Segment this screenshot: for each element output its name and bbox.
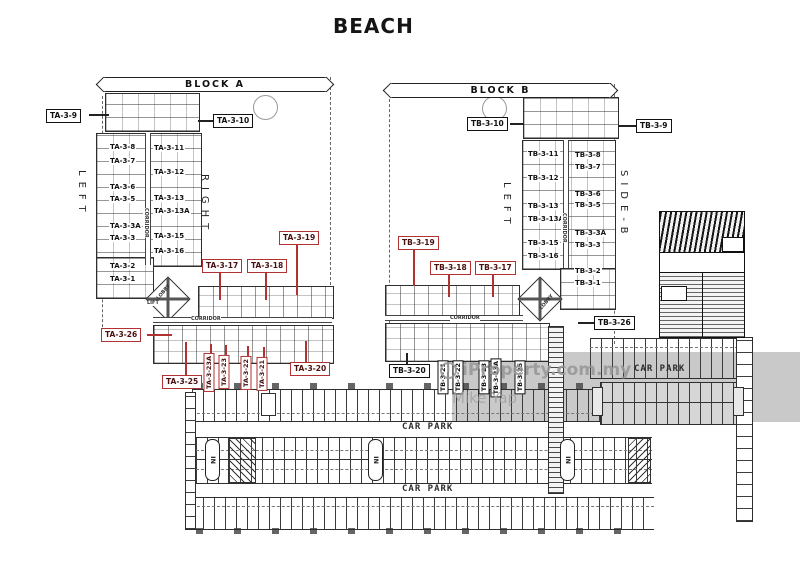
carpark-label-3: CAR PARK [634,364,685,374]
label-leader-line [89,114,109,116]
unit-label-ta-3-7: TA-3-7 [109,158,136,165]
unit-label-tb-3-11: TB-3-11 [527,151,560,158]
unit-label-ta-3-3a: TA-3-3A [109,223,142,230]
block-a-corridor-text: CORRIDOR [143,208,148,238]
label-leader-line [219,273,221,300]
unit-label-tb-3-5: TB-3-5 [574,202,602,209]
unit-label-ta-3-8: TA-3-8 [109,144,136,151]
label-leader-line [618,125,637,127]
unit-label-tb-3-8: TB-3-8 [574,152,602,159]
carpark-ramp-chevron [228,438,256,483]
unit-label-ta-3-13a: TA-3-13A [153,208,191,215]
unit-label-tb-3-19: TB-3-19 [398,236,439,250]
block-b-side-left-label: LEFT [501,182,512,252]
unit-label-ta-3-6: TA-3-6 [109,184,136,191]
unit-label-tb-3-17: TB-3-17 [475,261,516,275]
block-a-bottom-corridor-text: CORRIDOR [191,317,221,322]
unit-label-tb-3-15: TB-3-15 [527,240,560,247]
unit-label-tb-3-6: TB-3-6 [574,191,602,198]
watermark: i iProperty.com.my [440,360,631,380]
unit-label-ta-3-21: TA-3-21 [257,357,268,391]
right-edge-columns [736,337,753,522]
block-a-bottom-corridor [153,317,332,323]
boundary-dash-a-right [330,77,331,305]
tree-circle-a [253,95,278,120]
block-b-corridor [563,140,569,268]
label-leader-line [492,275,494,297]
label-leader-line [185,342,187,377]
unit-label-ta-3-26: TA-3-26 [101,328,141,342]
unit-label-ta-3-23a: TA-3-23A [204,353,215,392]
block-b-lift-core [517,276,562,321]
carpark-left-edge [185,392,196,530]
block-b-bottom-wing-upper [385,285,520,317]
block-a-corridor [145,133,151,265]
unit-label-tb-3-13a: TB-3-13A [527,216,565,223]
unit-label-tb-3-13: TB-3-13 [527,203,560,210]
floor-plan-page: BEACH BLOCK A BLOCK B LEFT RIGHT LEFT SI… [0,0,800,586]
unit-label-ta-3-23: TA-3-23 [219,355,230,389]
page-title: BEACH [333,14,414,38]
label-leader-line [413,250,415,286]
unit-label-ta-3-10: TA-3-10 [213,114,253,128]
unit-label-tb-3-16: TB-3-16 [527,253,560,260]
unit-label-ta-3-9: TA-3-9 [46,109,81,123]
unit-label-ta-3-13: TA-3-13 [153,195,185,202]
unit-label-ta-3-11: TA-3-11 [153,145,185,152]
unit-label-ta-3-17: TA-3-17 [202,259,242,273]
unit-label-tb-3-3: TB-3-3 [574,242,602,249]
block-a-top-units [105,93,200,132]
block-a-banner: BLOCK A [103,77,327,92]
carpark-ramp-right [628,438,651,483]
unit-label-ta-3-1: TA-3-1 [109,276,136,283]
parking-row-middle [196,437,652,484]
parking-island [600,382,737,425]
watermark-brand: iProperty.com.my [462,360,631,380]
watermark-user: Mike Yap [452,389,517,407]
carpark-in-marker-1: IN [205,439,220,481]
unit-label-ta-3-12: TA-3-12 [153,169,185,176]
label-leader-line [510,123,524,125]
tower-divider [702,272,703,337]
unit-label-tb-3-26: TB-3-26 [594,316,635,330]
block-b-bottom-wing-lower [385,323,550,362]
label-leader-line [305,341,307,364]
block-b-corridor-text: CORRIDOR [561,213,566,243]
block-a-lift-shaft [261,393,276,416]
label-leader-line [147,334,172,336]
unit-label-ta-3-20: TA-3-20 [290,362,330,376]
unit-label-tb-3-9: TB-3-9 [636,119,672,133]
unit-label-ta-3-2: TA-3-2 [109,263,136,270]
parking-row-bottom [192,497,654,530]
parking-island-tab-right [733,387,744,416]
carpark-in-marker-3: IN [560,439,575,481]
label-leader-line [296,245,298,295]
unit-label-tb-3-18: TB-3-18 [430,261,471,275]
unit-label-ta-3-18: TA-3-18 [247,259,287,273]
block-b-bottom-corridor-text: CORRIDOR [450,316,480,321]
tower-notch-top [722,237,744,252]
block-a-side-right-label: RIGHT [199,174,210,254]
unit-label-ta-3-5: TA-3-5 [109,196,136,203]
block-a-side-left-label: LEFT [76,170,87,250]
label-leader-line [448,275,450,297]
block-b-banner: BLOCK B [390,83,611,98]
block-a-lift-text: LIFT [147,301,159,306]
label-leader-line [265,273,267,300]
hatched-tower [659,211,745,338]
unit-label-tb-3-12: TB-3-12 [527,175,560,182]
unit-label-tb-3-3a: TB-3-3A [574,230,607,237]
unit-label-tb-3-20: TB-3-20 [389,364,430,378]
carpark-label-1: CAR PARK [402,422,453,432]
unit-label-ta-3-3: TA-3-3 [109,235,136,242]
unit-label-tb-3-2: TB-3-2 [574,268,602,275]
block-b-side-right-label: SIDE-B [618,170,629,254]
unit-label-ta-3-19: TA-3-19 [279,231,319,245]
carpark-label-2: CAR PARK [402,484,453,494]
carpark-in-marker-2: IN [368,439,383,481]
unit-label-ta-3-15: TA-3-15 [153,233,185,240]
unit-label-tb-3-10: TB-3-10 [467,117,508,131]
parking-island-tab-left [592,387,603,416]
label-leader-line [578,322,595,324]
unit-label-tb-3-7: TB-3-7 [574,164,602,171]
unit-label-ta-3-25: TA-3-25 [162,375,202,389]
unit-label-tb-3-1: TB-3-1 [574,280,602,287]
block-b-top-units [523,97,619,139]
unit-label-ta-3-16: TA-3-16 [153,248,185,255]
info-circle-icon: i [440,362,457,379]
label-leader-line [198,120,214,122]
unit-label-ta-3-22: TA-3-22 [241,356,252,390]
tower-notch-body [661,286,687,301]
